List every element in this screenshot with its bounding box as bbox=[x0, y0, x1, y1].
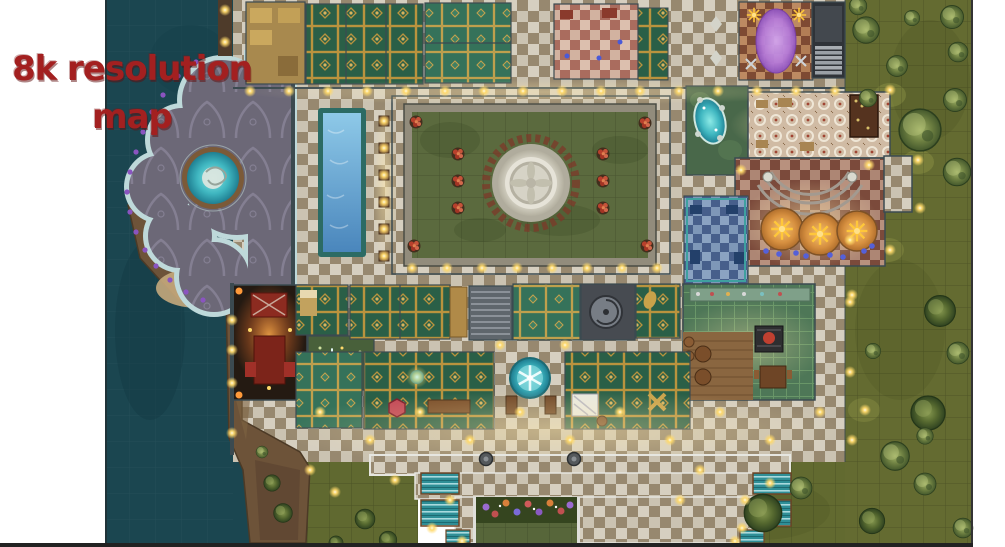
rotunda-spiral-pool bbox=[180, 145, 246, 211]
pink-bedroom bbox=[554, 4, 638, 79]
porch bbox=[884, 156, 912, 212]
orange-canopies bbox=[761, 208, 877, 255]
swimming-pool bbox=[318, 108, 366, 257]
central-courtyard bbox=[392, 96, 670, 274]
staircase-hall bbox=[469, 286, 512, 340]
spiral-staircase bbox=[581, 284, 635, 340]
promo-text: 8k resolution map bbox=[0, 46, 264, 141]
pool-colonnade bbox=[372, 105, 398, 265]
service-stairs bbox=[812, 2, 845, 78]
purple-lounge bbox=[739, 2, 813, 80]
promo-line-2: map bbox=[0, 94, 264, 142]
screenshot-root: 8k resolution map bbox=[0, 0, 1005, 547]
kitchen-and-tavern bbox=[675, 284, 825, 400]
promo-line-1: 8k resolution bbox=[0, 46, 264, 94]
flower-garden bbox=[473, 497, 580, 543]
blue-tiled-room bbox=[684, 196, 748, 284]
